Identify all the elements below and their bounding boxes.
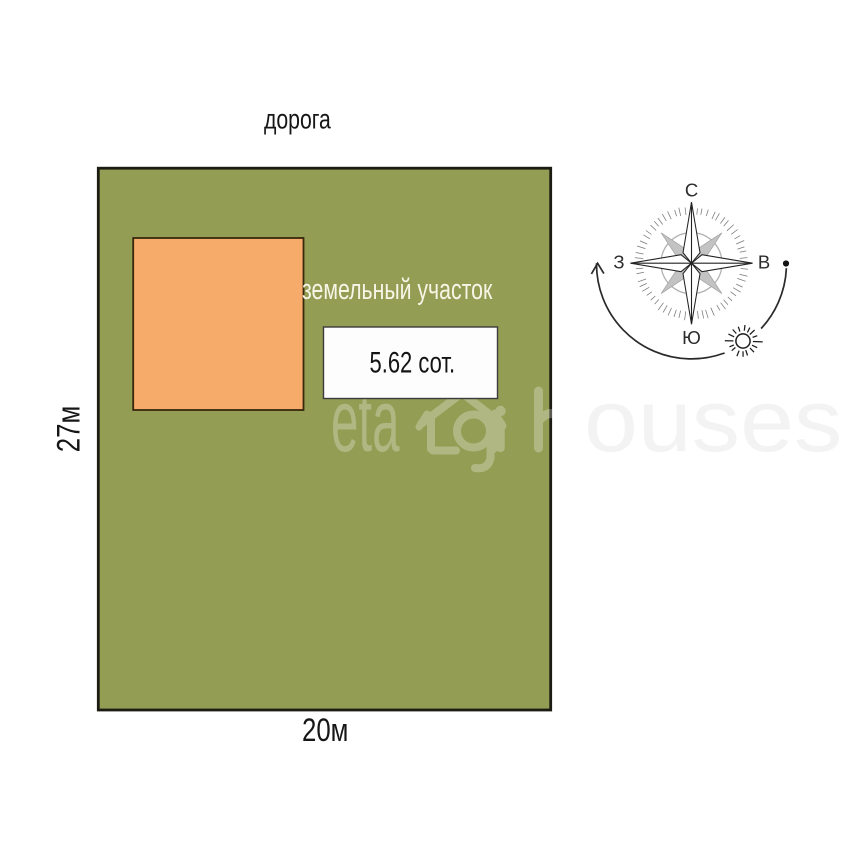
svg-text:С: С [685,180,698,201]
svg-text:ouses: ouses [584,371,842,470]
svg-text:В: В [758,252,770,273]
svg-text:З: З [613,252,624,273]
svg-text:5.62 сот.: 5.62 сот. [369,345,455,379]
svg-text:27м: 27м [52,406,87,452]
svg-text:20м: 20м [302,713,348,748]
svg-text:земельный участок: земельный участок [302,274,493,306]
svg-text:дорога: дорога [264,105,331,135]
svg-text:Ю: Ю [682,327,701,348]
